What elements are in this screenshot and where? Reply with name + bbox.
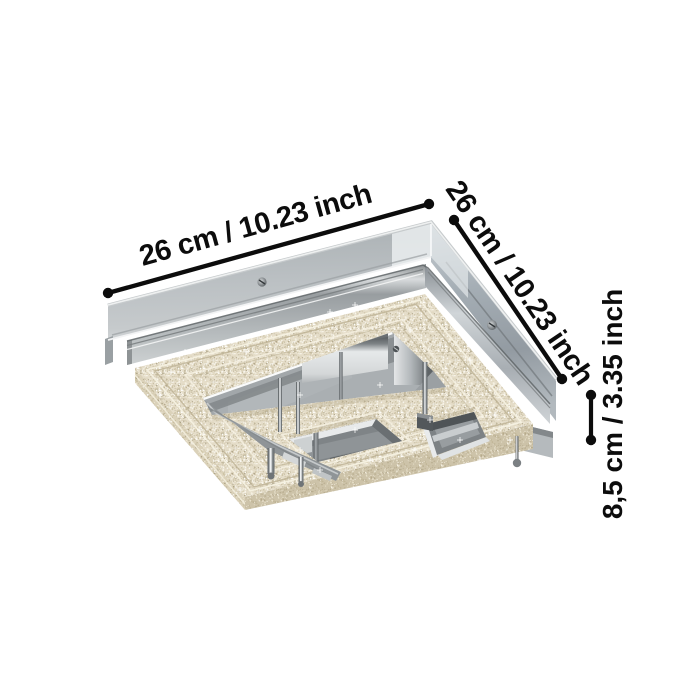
svg-text:8,5 cm / 3.35 inch: 8,5 cm / 3.35 inch — [597, 289, 628, 519]
